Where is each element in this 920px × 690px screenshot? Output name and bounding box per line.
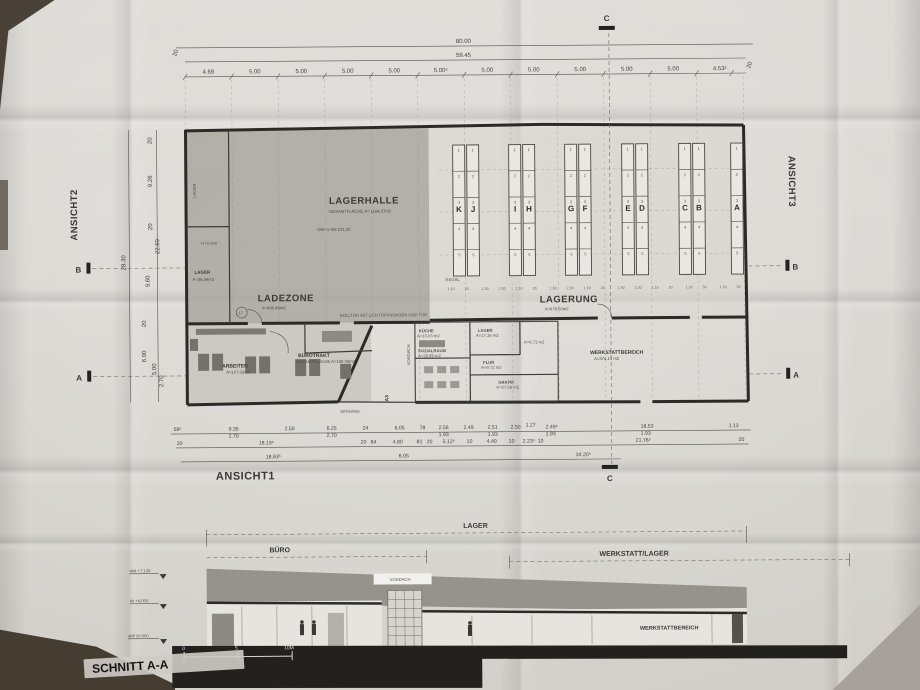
rack-cell-number: 2 [570,174,572,178]
wall-left [185,130,187,405]
rack-cell-number: 2 [684,173,686,177]
rack-cell-number: 2 [641,173,643,177]
dim-top: 5.00 [574,67,586,73]
rack-dim: 2.20 [499,287,506,291]
level-markers: okd +7.135 ok +4.000 okff ±0.000 [128,568,168,644]
dim-bottom-r3: 18.63⁵ [266,454,281,460]
rack-cell-number: 2 [528,174,530,178]
dim-bottom-r1: 2.50 [285,426,295,432]
lager-corner-label: LAGER [192,184,197,198]
a3-marker: A3 [384,395,390,402]
rack-cell-number: 2 [458,175,460,179]
rack-dim: 20 [465,287,469,291]
rack-cell-number: 5 [584,252,586,256]
rack-dim: 1.10 [584,286,591,290]
dim-bottom-r2: 4.40 [487,439,497,445]
rack-dim: 1.10 [448,287,455,291]
rack-cell-number: 1 [458,148,460,152]
kitchen-counter [419,340,445,347]
floor-plan: LAGER H=2.900 LAGER A=46.56m2 LAGERHALLE… [185,76,748,415]
rack-cell-number: 4 [736,225,738,229]
drawing: LAGER H=2.900 LAGER A=46.56m2 LAGERHALLE… [0,0,920,690]
dim-bottom-r1: 1.93 [641,431,651,437]
rack-cell-number: 5 [472,253,474,257]
rack-cell-number: 2 [698,173,700,177]
rack-dim: 1.30 [686,285,693,289]
werkstatt-area: A=374.13 m2 [594,356,620,361]
dim-bottom-r1: 6.25 [327,426,337,432]
wc-area: A=6.71 m2 [524,339,545,344]
regal-label: REGAL [446,277,461,282]
hall-level: OKF ü NN 101.20 [317,227,351,232]
rack-letter-J: J [471,205,476,214]
marker-b-right: B [792,263,798,272]
top-dimension-row: 4.695.005.005.005.005.00⁵5.005.005.005.0… [183,65,734,80]
rack-cell-number: 2 [584,174,586,178]
rack-cell-number: 1 [528,148,530,152]
rack-cell-number: 1 [684,147,686,151]
dim-bottom-r2: 20 [739,437,745,443]
dim-left: 6.00 [142,350,148,362]
shelving [196,328,266,334]
rack-cell-number: 4 [528,227,530,231]
photo-of-floor-plan-sheet: LAGER H=2.900 LAGER A=46.56m2 LAGERHALLE… [0,0,920,690]
dim-bottom-r1: 2.51 [488,425,498,431]
bracket-buero: BÜRO [269,545,290,554]
flur-area: A=9.72 m2 [481,365,502,370]
marker-c-bottom: C [607,474,613,483]
rack-dim: 1.10 [652,286,659,290]
rack-cell-number: 5 [736,251,738,255]
dim-top-total: 80.00 [456,39,472,45]
dim-bottom-r1: 18.53 [641,424,654,430]
dim-bottom-r2: 10 [509,439,515,445]
rack-cell-number: 5 [698,252,700,256]
dim-top: 5.00 [295,69,307,75]
rack-dim: 20 [601,286,605,290]
rack-cell-number: 1 [736,147,738,151]
rack-letter-B: B [696,203,702,212]
rack-cell-number: 4 [514,227,516,231]
dim-bottom-r2: 10 [538,438,544,444]
dim-top: 4.69 [202,70,214,76]
kueche-area: A=13.03 m2 [417,333,440,338]
dim-bottom-r2: 10 [467,439,473,445]
dim-bottom-r1: 24 [363,426,369,432]
dim-bottom-r2: 84 [371,440,377,446]
rack-letter-E: E [625,204,631,213]
rack-cell-number: 1 [570,148,572,152]
lager-mid-area: A=17.16 m2 [476,333,499,338]
dim-top: 5.00 [481,68,493,74]
lager-room-label: LAGER [194,270,211,275]
eingang-label: EINGANG [340,409,359,414]
dim-left: 20 [148,223,154,230]
bracket-werkstatt: WERKSTATT/LAGER [599,551,668,558]
dim-top: 5.00 [342,69,354,75]
meeting-table [322,331,352,342]
dim-left: 9.60 [146,275,152,287]
lagerung-area: A=679.50m2 [545,306,570,311]
rack-dim: 20 [669,286,673,290]
hall-title: LAGERHALLE [329,195,399,206]
rack-cell-number: 2 [514,174,516,178]
vordach-label: VORDACH [406,344,411,365]
dim-end: 20 [172,49,180,58]
rack-cell-number: 4 [458,227,460,231]
middle-rooms: VORDACH KÜCHE A=13.03 m2 LAGER A=17.16 m… [406,321,559,402]
rack-letter-G: G [568,204,574,213]
dim-bottom-r1: 78 [420,425,426,431]
hall-area: GESAMTFLÄCHE A= 1164.37m2 [329,208,392,213]
grafik-area: A=27.56 m2 [496,385,519,390]
rack-cell-number: 2 [627,174,629,178]
ansicht3-label: ANSICHT3 [786,156,797,208]
rack-dim: 2.20 [635,286,642,290]
section-werkstattbereich: WERKSTATTBEREICH [640,625,699,631]
dim-left: 22.69 [155,238,161,254]
ladezone-area: A=438.46m2 [262,305,287,310]
door-leaf [732,614,743,643]
rack-dim: 50 [737,285,741,289]
dim-left: 28.30 [121,255,127,271]
dim-bottom-r1: 9.35 [229,427,239,433]
lagerung-title: LAGERUNG [540,294,598,305]
rack-cell-number: 5 [514,253,516,257]
rack-dim: 1.30 [482,287,489,291]
bottom-dimension-rows: 59⁵9.352.702.506.252.70246.05782.561.932… [174,421,745,461]
rack-cell-number: 1 [472,148,474,152]
dim-bottom-r1: 2.70 [229,434,239,440]
rack-cell-number: 2 [472,175,474,179]
dim-bottom-r1: 1.93 [439,432,449,438]
rack-cell-number: 4 [570,226,572,230]
dim-bottom-r1: 59⁵ [174,427,182,433]
rack-cell-number: 5 [684,252,686,256]
dim-bottom-r1: 1.93 [546,431,556,437]
ground-mass [172,641,847,690]
rack-dim: 2.20 [567,286,574,290]
section-drawing: LAGER BÜRO WERKSTATT/LAGER [83,520,851,690]
rack-letter-C: C [682,203,688,212]
rack-cell-number: 2 [736,173,738,177]
rack-dim: 50 [703,285,707,289]
rack-letter-F: F [583,204,588,213]
rack-dim: 1.50 [550,286,557,290]
dim-bottom-r2: 20 [361,440,367,446]
rack-cell-number: 4 [472,227,474,231]
rack-letter-H: H [526,204,532,213]
lager-room-height: H=2.900 [201,241,218,246]
dim-bottom-r1: 2.50 [511,425,521,431]
rack-dim: 1.10 [516,287,523,291]
rack-cell-number: 4 [641,226,643,230]
dim-bottom-r1: 2.49 [464,425,474,431]
dim-left: 20 [142,320,148,327]
ladezone-title: LADEZONE [258,293,314,304]
arbeiten-area: A=107.02m2 [226,369,251,374]
dim-top: 5.00 [621,67,633,73]
rack-letter-D: D [639,204,645,213]
dim-bottom-r2: 2.23⁵ [523,438,535,444]
dim-top: 5.00 [249,69,261,75]
dim-left: 5.00 [152,363,158,375]
dim-bottom-r1: 6.05 [395,425,405,431]
rack-cell-number: 1 [627,147,629,151]
buerotrakt-area: GESAMTFLÄCHE A=158.06m2 [296,359,356,364]
dim-bottom-r2: 20 [427,439,433,445]
marker-c-top: C [604,14,610,23]
rolltor-note: ROLLTOR MIT LICHTÖFFNUNGEN UND TOR [340,312,428,318]
dim-top: 5.00 [667,66,679,72]
bracket-lager: LAGER [463,523,488,530]
rack-cell-number: 5 [627,252,629,256]
dim-top: 5.00⁵ [434,67,449,74]
dim-top: 5.00 [388,68,400,74]
rack-cell-number: 5 [641,252,643,256]
rack-cell-number: 5 [528,253,530,257]
rack-dim: 20 [533,286,537,290]
ansicht2-label: ANSICHT2 [69,189,80,241]
rack-dim: 1.20 [720,285,727,289]
sozialraum-area: A=29.89 m2 [418,353,441,358]
rack-cell-number: 1 [514,148,516,152]
dim-bottom-r2: 21.76⁵ [636,438,651,444]
rack-cell-number: 1 [698,147,700,151]
level-top: okd +7.135 [130,568,152,573]
position-number: 17 [238,311,243,316]
door-leaf [328,613,344,646]
dim-bottom-r1: 1.93 [488,432,498,438]
dim-bottom-r1: 2.70 [327,433,337,439]
section-vordach-label: VORDACH [390,577,411,582]
dim-bottom-r1: 2.56 [439,425,449,431]
dim-bottom-r2: 18.13⁵ [259,440,274,446]
rack-letter-K: K [456,205,462,214]
dim-top-inner: 59.45 [456,53,472,59]
rack-cell-number: 1 [584,148,586,152]
cabinet [212,614,234,647]
rack-cell-number: 4 [584,226,586,230]
dim-bottom-r2: 5.12⁵ [443,439,455,445]
dim-left: 2.70 [159,375,165,387]
dim-top: 4.53¹ [713,66,727,72]
marker-a-right: A [793,371,799,380]
lager-room-area: A=46.56m2 [193,277,215,282]
dim-bottom-r1: 2.49⁵ [546,424,558,430]
rack-cell-number: 5 [458,253,460,257]
rack-letter-A: A [734,203,740,212]
dim-bottom-r2: 81 [417,439,423,445]
sozialraum-tables [424,366,459,388]
rack-cell-number: 4 [627,226,629,230]
scale-zero: 0 [182,646,185,652]
rack-cell-number: 4 [698,225,700,229]
dim-top: 5.00 [528,67,540,73]
dim-end: 20 [746,61,754,70]
wall-bottom-right [652,401,748,402]
marker-b-left: B [75,266,81,275]
dim-bottom-r1: 1.13 [729,423,739,429]
marker-a-left: A [76,374,82,383]
dim-bottom-r3: 6.05 [399,453,409,459]
rack-dim: 1.50 [618,286,625,290]
rack-letter-I: I [514,205,516,214]
dim-bottom-r2: 4.80 [393,439,403,445]
level-zero: okff ±0.000 [128,633,149,638]
dim-bottom-r1: 1.27 [526,422,536,428]
scale-ten: 10M [284,645,294,651]
dim-bottom-r3: 34.20⁵ [576,452,591,458]
dim-left: 20 [148,137,154,144]
rack-cell-number: 5 [570,253,572,257]
rack-cell-number: 1 [641,147,643,151]
rack-cell-number: 4 [684,226,686,230]
dim-bottom-r2: 20 [177,441,183,447]
dim-left: 9.26 [148,175,154,187]
ansicht1-label: ANSICHT1 [216,470,275,482]
level-mid: ok +4.000 [130,598,149,603]
